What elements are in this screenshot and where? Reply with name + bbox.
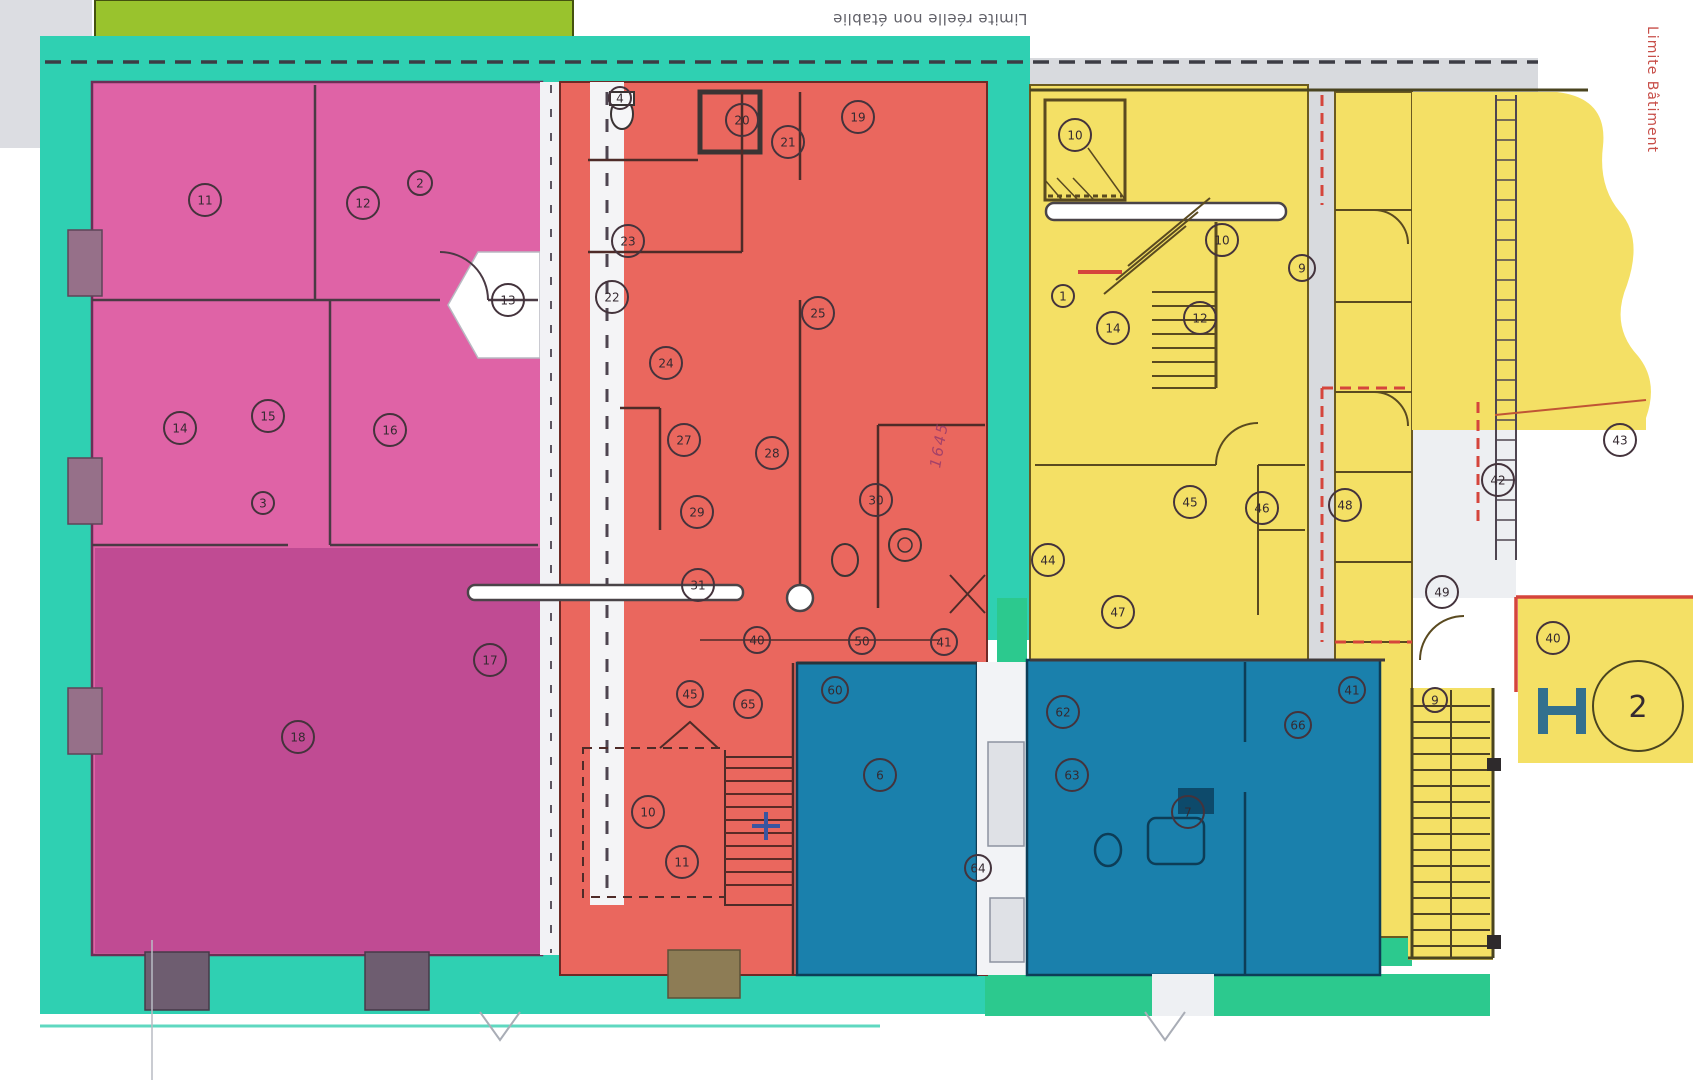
big-circle: 2 bbox=[1593, 661, 1683, 751]
svg-text:62: 62 bbox=[1055, 705, 1070, 719]
svg-text:10: 10 bbox=[1067, 128, 1082, 142]
svg-text:43: 43 bbox=[1612, 433, 1627, 447]
svg-text:12: 12 bbox=[355, 196, 370, 210]
corner-block-1 bbox=[1487, 758, 1501, 771]
svg-text:20: 20 bbox=[734, 113, 749, 127]
svg-text:66: 66 bbox=[1290, 718, 1305, 732]
corner-block-2 bbox=[1487, 935, 1501, 949]
svg-text:6: 6 bbox=[876, 768, 884, 782]
pill-wall-yellow bbox=[1046, 203, 1286, 220]
svg-text:29: 29 bbox=[689, 505, 704, 519]
window-bottom-2 bbox=[365, 952, 429, 1010]
teal-band-middle bbox=[985, 55, 1030, 640]
window-left-1 bbox=[68, 230, 102, 296]
svg-text:4: 4 bbox=[616, 91, 624, 105]
svg-text:45: 45 bbox=[1182, 495, 1197, 509]
svg-text:10: 10 bbox=[640, 805, 655, 819]
boundary-note-top: Limite réelle non établie bbox=[775, 10, 1085, 28]
svg-text:45: 45 bbox=[682, 687, 697, 701]
svg-text:18: 18 bbox=[290, 730, 305, 744]
svg-text:23: 23 bbox=[620, 234, 635, 248]
floorplan-page: 2111221314151631718420211923222425272829… bbox=[0, 0, 1693, 1080]
svg-text:47: 47 bbox=[1110, 605, 1125, 619]
svg-text:15: 15 bbox=[260, 409, 275, 423]
svg-text:10: 10 bbox=[1214, 233, 1229, 247]
svg-text:41: 41 bbox=[1344, 683, 1359, 697]
window-left-3 bbox=[68, 688, 102, 754]
svg-text:42: 42 bbox=[1490, 473, 1505, 487]
wall-end-cap bbox=[787, 585, 813, 611]
svg-text:48: 48 bbox=[1337, 498, 1352, 512]
svg-text:49: 49 bbox=[1434, 585, 1449, 599]
svg-text:40: 40 bbox=[749, 633, 764, 647]
yellow-zone-main bbox=[1030, 85, 1308, 662]
svg-text:14: 14 bbox=[1105, 321, 1120, 335]
svg-text:30: 30 bbox=[868, 493, 883, 507]
pink-dark-room bbox=[95, 548, 540, 953]
svg-text:2: 2 bbox=[1628, 690, 1647, 725]
svg-text:17: 17 bbox=[482, 653, 497, 667]
h-fixture-cross bbox=[1538, 706, 1586, 715]
gray-pocket-right bbox=[1412, 430, 1516, 598]
svg-text:44: 44 bbox=[1040, 553, 1055, 567]
svg-text:19: 19 bbox=[850, 110, 865, 124]
blue-zone-1 bbox=[797, 663, 977, 975]
col-door-arc-3 bbox=[1420, 616, 1464, 660]
svg-text:41: 41 bbox=[936, 635, 951, 649]
svg-text:46: 46 bbox=[1254, 501, 1269, 515]
svg-text:11: 11 bbox=[197, 193, 212, 207]
svg-text:60: 60 bbox=[827, 683, 842, 697]
svg-text:25: 25 bbox=[810, 306, 825, 320]
svg-text:65: 65 bbox=[740, 697, 755, 711]
window-bottom-1 bbox=[145, 952, 209, 1010]
svg-text:27: 27 bbox=[676, 433, 691, 447]
svg-text:28: 28 bbox=[764, 446, 779, 460]
emerald-band-bottom bbox=[985, 974, 1490, 1016]
door-slab-2 bbox=[990, 898, 1024, 962]
svg-text:63: 63 bbox=[1064, 768, 1079, 782]
svg-text:9: 9 bbox=[1431, 693, 1439, 707]
v-mark-2 bbox=[1145, 1012, 1185, 1040]
svg-text:16: 16 bbox=[382, 423, 397, 437]
door-slab-1 bbox=[988, 742, 1024, 846]
svg-text:40: 40 bbox=[1545, 631, 1560, 645]
blue2-door-gap bbox=[1152, 974, 1214, 1016]
svg-text:50: 50 bbox=[854, 634, 869, 648]
svg-text:64: 64 bbox=[970, 861, 985, 875]
svg-text:1: 1 bbox=[1059, 289, 1067, 303]
svg-text:2: 2 bbox=[416, 176, 424, 190]
olive-door-slab bbox=[668, 950, 740, 998]
svg-text:22: 22 bbox=[604, 290, 619, 304]
svg-text:31: 31 bbox=[690, 578, 705, 592]
svg-text:11: 11 bbox=[674, 855, 689, 869]
svg-text:7: 7 bbox=[1184, 805, 1192, 819]
svg-text:13: 13 bbox=[500, 293, 515, 307]
svg-text:12: 12 bbox=[1192, 311, 1207, 325]
floorplan: 2111221314151631718420211923222425272829… bbox=[0, 0, 1693, 1080]
yellow-blob-topright bbox=[1412, 92, 1651, 430]
window-left-2 bbox=[68, 458, 102, 524]
svg-text:9: 9 bbox=[1298, 261, 1306, 275]
svg-text:24: 24 bbox=[658, 356, 673, 370]
svg-text:3: 3 bbox=[259, 496, 267, 510]
boundary-note-right: Limite Bâtiment bbox=[1644, 26, 1660, 153]
svg-text:21: 21 bbox=[780, 135, 795, 149]
svg-text:14: 14 bbox=[172, 421, 187, 435]
